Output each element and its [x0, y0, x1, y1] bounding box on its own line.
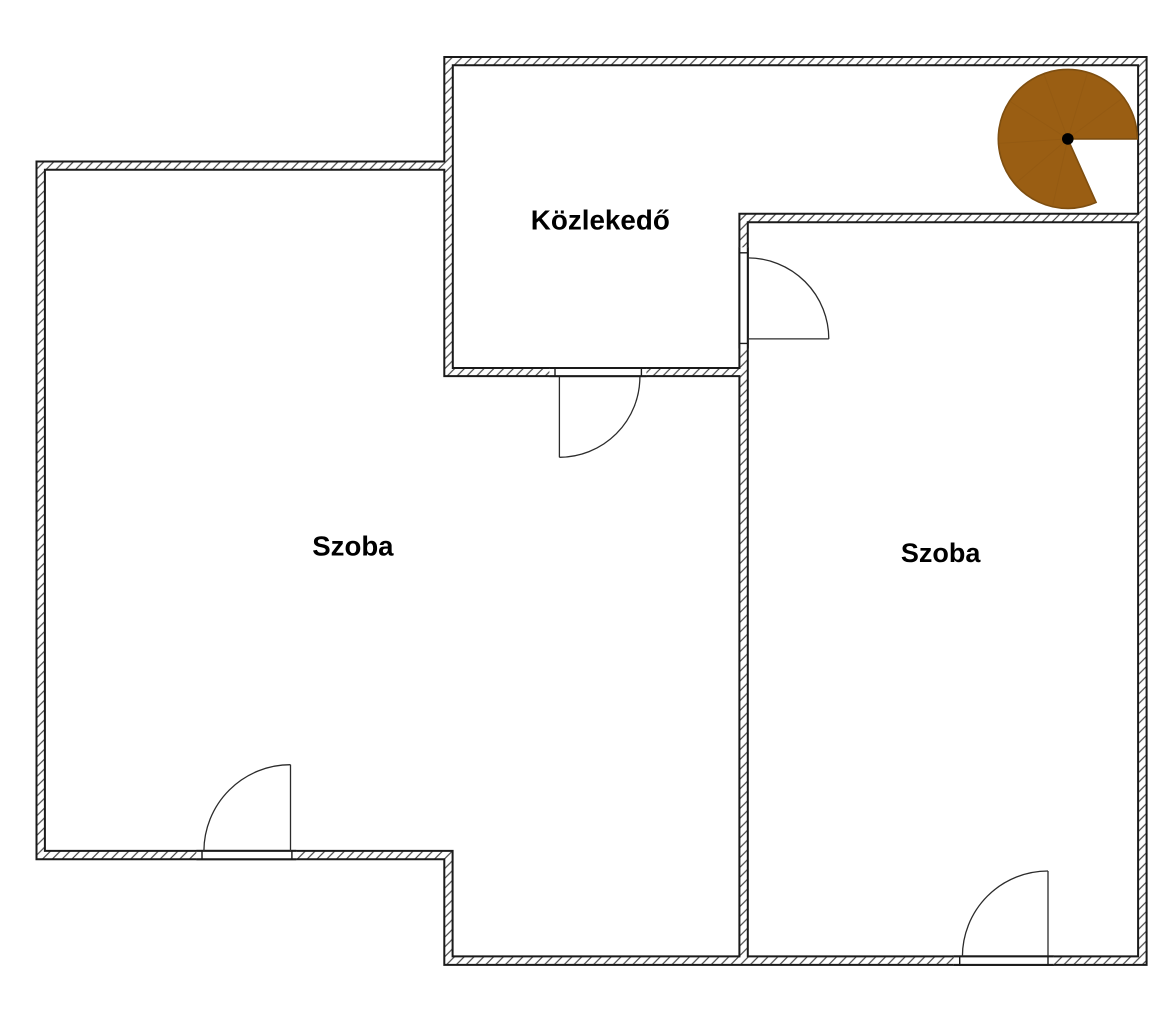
svg-text:Közlekedő: Közlekedő	[531, 204, 670, 235]
svg-text:Szoba: Szoba	[312, 531, 394, 562]
svg-text:Szoba: Szoba	[901, 538, 981, 568]
